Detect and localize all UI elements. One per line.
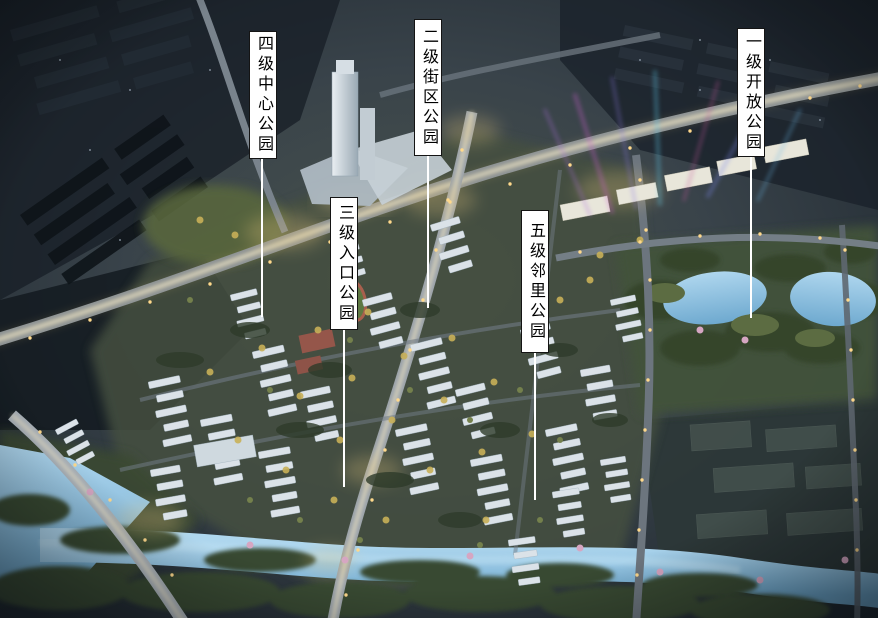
leader-line-level-1-open-park (750, 156, 752, 318)
label-level-3-entrance-park: 三级入口公园 (330, 197, 358, 330)
aerial-masterplan-screenshot: 四级中心公园 二级街区公园 一级开放公园 三级入口公园 五级邻里公园 (0, 0, 878, 618)
leader-line-level-4-central-park (261, 158, 263, 317)
label-level-2-block-park: 二级街区公园 (414, 19, 442, 156)
leader-line-level-2-block-park (427, 155, 429, 308)
leader-line-level-5-neighborhood-park (534, 352, 536, 500)
label-level-4-central-park: 四级中心公园 (249, 31, 277, 159)
label-level-5-neighborhood-park: 五级邻里公园 (521, 210, 549, 353)
label-level-1-open-park: 一级开放公园 (737, 28, 765, 157)
leader-line-level-3-entrance-park (343, 329, 345, 487)
